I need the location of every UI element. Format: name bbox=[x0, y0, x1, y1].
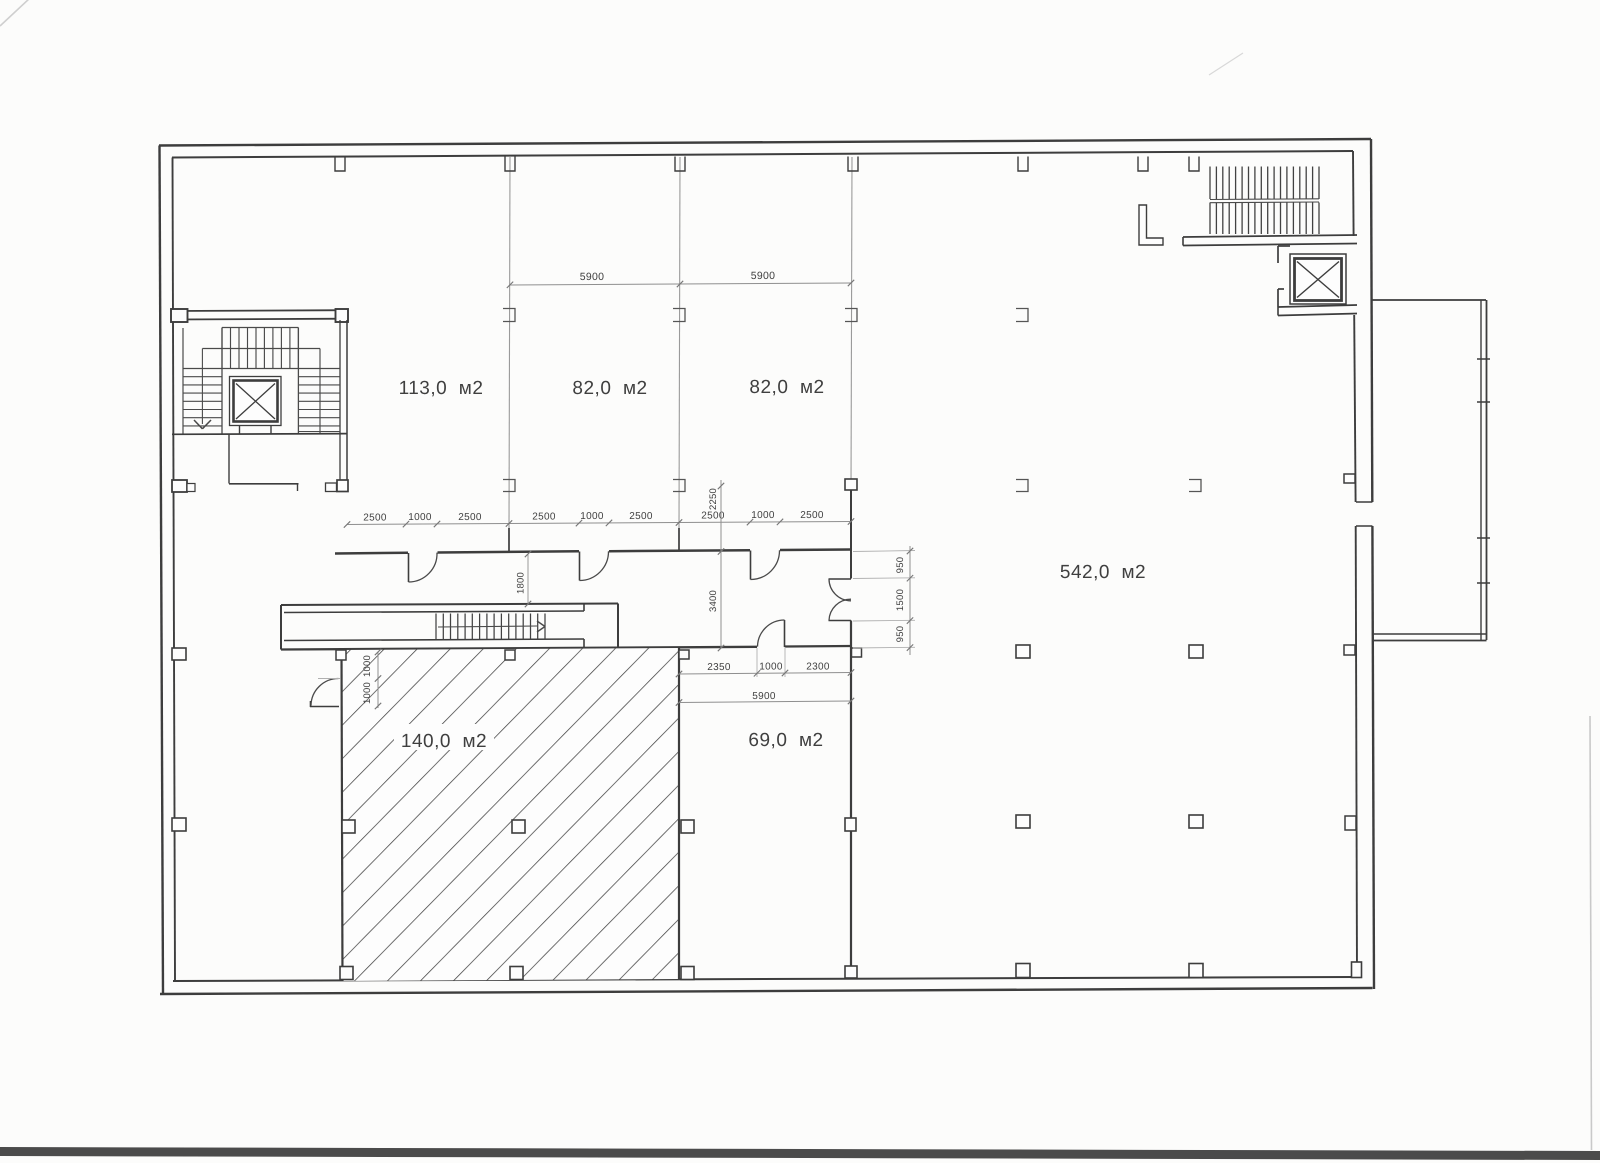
svg-text:542,0 м2: 542,0 м2 bbox=[1060, 562, 1146, 583]
svg-text:5900: 5900 bbox=[752, 691, 776, 702]
svg-text:2350: 2350 bbox=[707, 662, 731, 673]
svg-text:2500: 2500 bbox=[532, 512, 556, 523]
svg-text:1000: 1000 bbox=[580, 511, 604, 522]
svg-text:113,0 м2: 113,0 м2 bbox=[399, 378, 484, 399]
svg-text:82,0 м2: 82,0 м2 bbox=[572, 378, 647, 399]
svg-text:2250: 2250 bbox=[708, 488, 719, 510]
svg-text:2300: 2300 bbox=[806, 661, 830, 672]
svg-text:2500: 2500 bbox=[800, 510, 824, 521]
svg-text:950: 950 bbox=[895, 626, 906, 643]
svg-text:1800: 1800 bbox=[516, 572, 527, 594]
svg-text:2500: 2500 bbox=[629, 511, 653, 522]
svg-text:3400: 3400 bbox=[708, 590, 719, 612]
svg-text:5900: 5900 bbox=[580, 271, 605, 283]
svg-text:950: 950 bbox=[895, 557, 906, 574]
svg-text:1000: 1000 bbox=[362, 655, 373, 677]
svg-text:1000: 1000 bbox=[759, 662, 783, 673]
svg-text:5900: 5900 bbox=[751, 270, 776, 282]
svg-text:1000: 1000 bbox=[408, 512, 432, 523]
svg-text:82,0 м2: 82,0 м2 bbox=[749, 377, 824, 398]
svg-text:1000: 1000 bbox=[362, 682, 373, 704]
svg-text:140,0 м2: 140,0 м2 bbox=[401, 731, 487, 752]
svg-text:2500: 2500 bbox=[363, 513, 387, 524]
svg-text:2500: 2500 bbox=[458, 512, 482, 523]
svg-text:1500: 1500 bbox=[895, 589, 906, 611]
svg-text:69,0 м2: 69,0 м2 bbox=[748, 730, 823, 751]
svg-text:1000: 1000 bbox=[751, 510, 775, 521]
